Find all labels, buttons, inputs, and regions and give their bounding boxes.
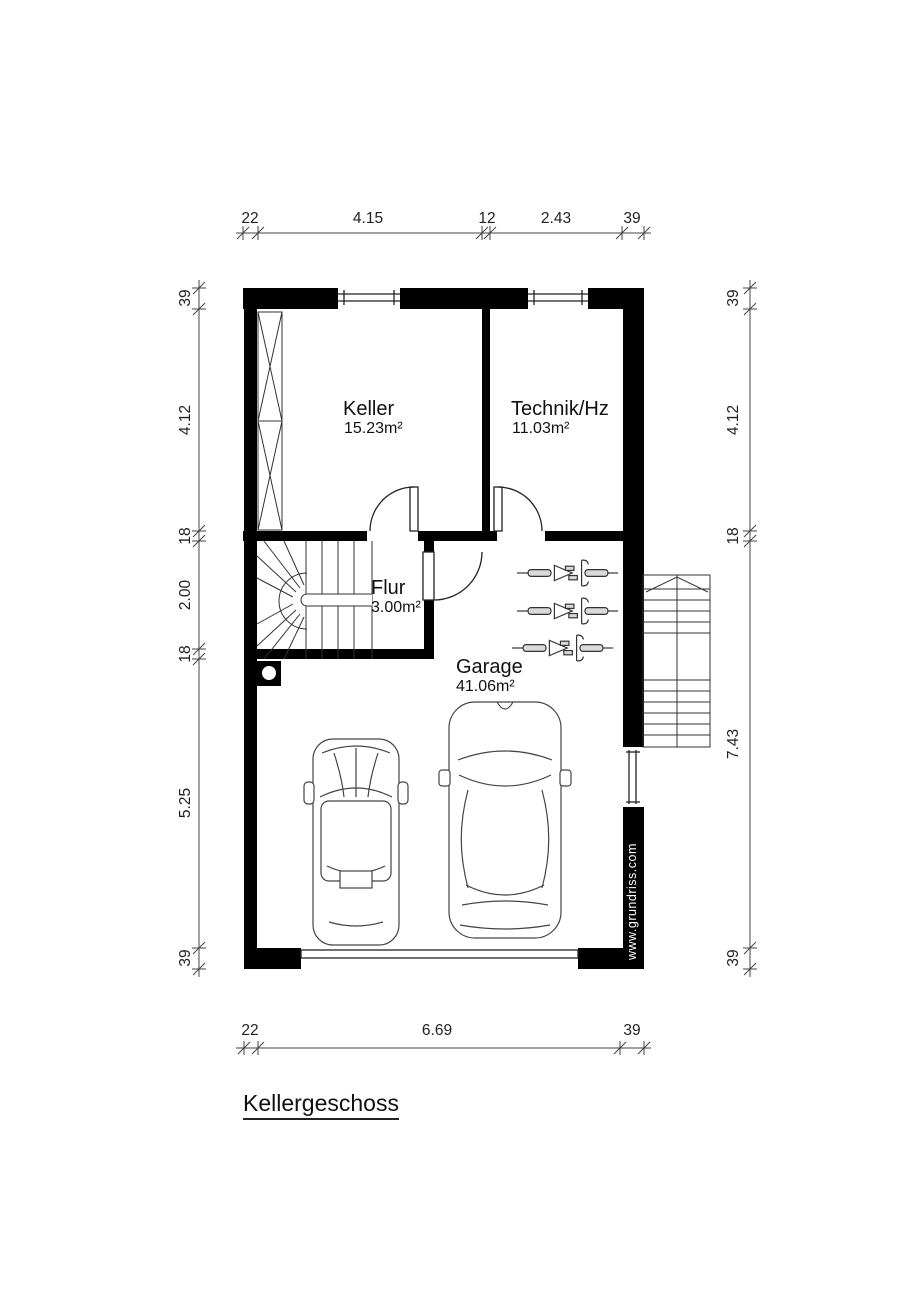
room-label-technik: Technik/Hz: [511, 399, 609, 420]
dim-top-wall-right: 39: [623, 211, 640, 227]
door-technik-icon: [494, 487, 542, 531]
dim-bottom-interior: 6.69: [422, 1023, 452, 1039]
door-keller-icon: [370, 487, 418, 531]
dim-left-1: 4.12: [178, 405, 194, 435]
floor-title: Kellergeschoss: [243, 1091, 399, 1120]
bicycle-icon: [512, 635, 613, 661]
room-area-flur: 3.00m²: [371, 600, 421, 617]
door-garage-icon: [423, 552, 482, 600]
dim-bottom-wall-right: 39: [623, 1023, 640, 1039]
bicycle-icons: [512, 560, 618, 661]
dim-bottom-wall-left: 22: [241, 1023, 258, 1039]
bicycle-icon: [517, 560, 618, 586]
dim-right-2: 18: [726, 527, 742, 544]
shelf-unit-icon: [258, 312, 282, 530]
dim-right-1: 4.12: [726, 405, 742, 435]
room-label-flur: Flur: [371, 578, 405, 599]
car-compact-icon: [304, 739, 408, 945]
dim-left-2: 18: [178, 527, 194, 544]
dim-left-3: 2.00: [178, 580, 194, 610]
dim-left-4: 18: [178, 645, 194, 662]
room-area-technik: 11.03m²: [512, 421, 570, 438]
bicycle-icon: [517, 598, 618, 624]
winder-stair-icon: [257, 541, 372, 659]
dim-top-technik: 2.43: [541, 211, 571, 227]
dim-top-keller: 4.15: [353, 211, 383, 227]
dim-right-4: 39: [726, 949, 742, 966]
garage-door-icon: [301, 950, 578, 958]
car-sedan-icon: [439, 702, 571, 938]
floorplan-drawing: [0, 0, 920, 1302]
dim-right-3: 7.43: [726, 729, 742, 759]
dim-left-5: 5.25: [178, 788, 194, 818]
dim-left-0: 39: [178, 289, 194, 306]
room-label-garage: Garage: [456, 657, 523, 678]
dim-top-wall-left: 22: [241, 211, 258, 227]
room-label-keller: Keller: [343, 399, 394, 420]
floor-title-wrap: Kellergeschoss: [243, 1091, 399, 1120]
floorplan-page: Keller 15.23m² Technik/Hz 11.03m² Flur 3…: [0, 0, 920, 1302]
column-post-icon: [262, 666, 276, 680]
exterior-stair-icon: [643, 575, 710, 747]
dim-left-6: 39: [178, 949, 194, 966]
room-area-keller: 15.23m²: [344, 421, 403, 438]
watermark-text: www.grundriss.com: [620, 832, 644, 972]
room-area-garage: 41.06m²: [456, 679, 515, 696]
dim-top-partition: 12: [478, 211, 495, 227]
dim-right-0: 39: [726, 289, 742, 306]
